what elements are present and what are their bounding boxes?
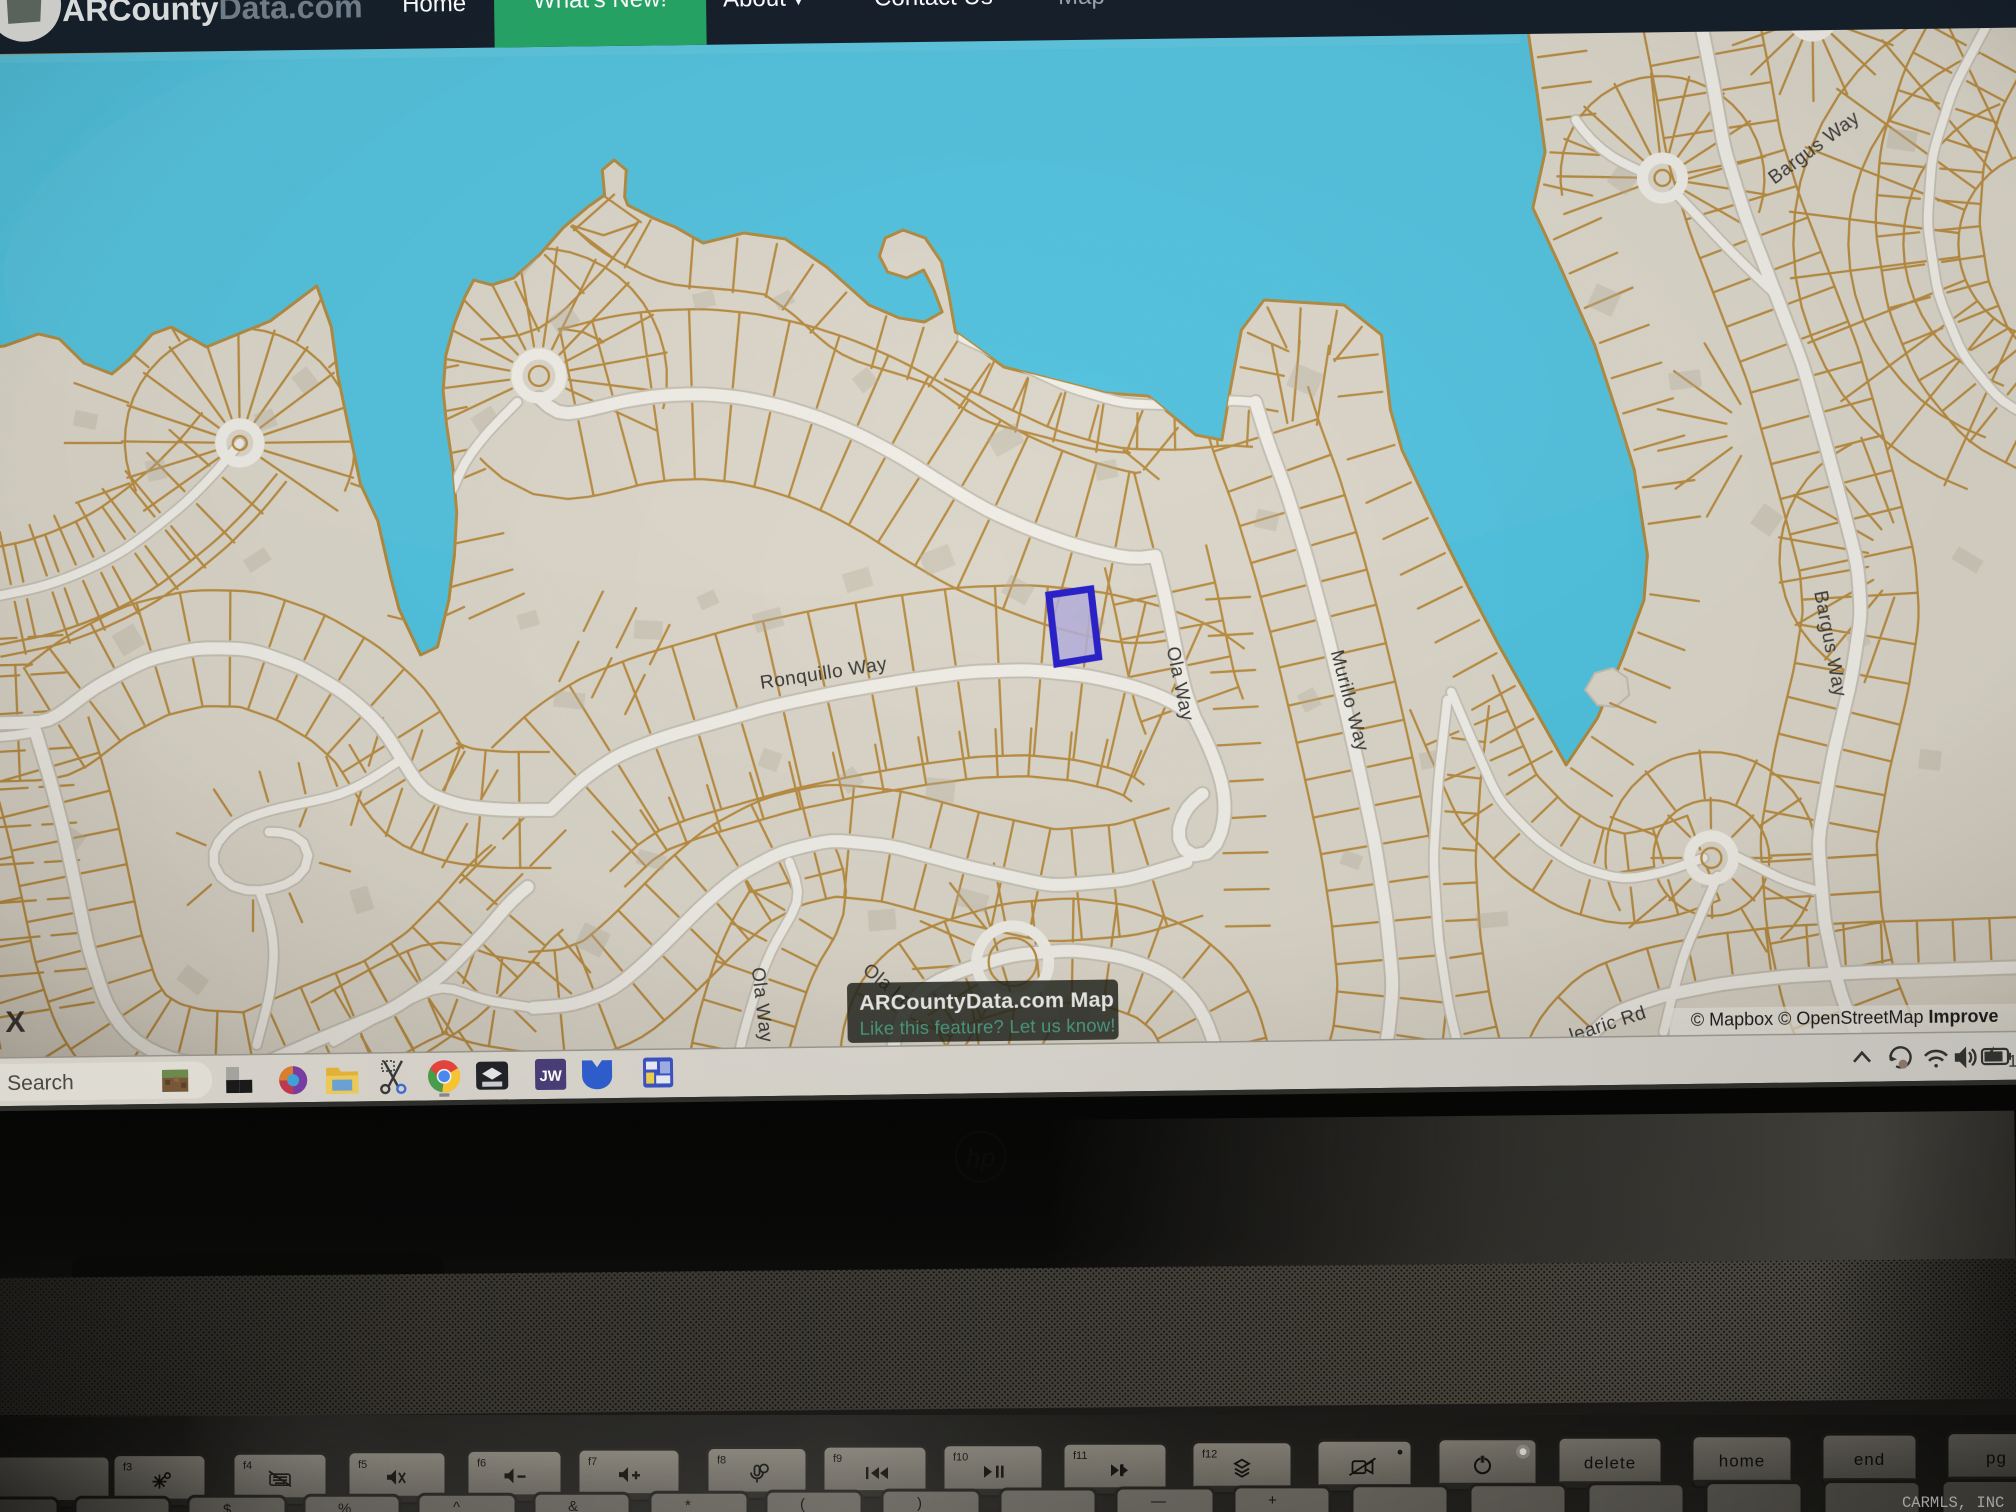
svg-text:CARMLS, INC: CARMLS, INC [1902,1494,2004,1512]
